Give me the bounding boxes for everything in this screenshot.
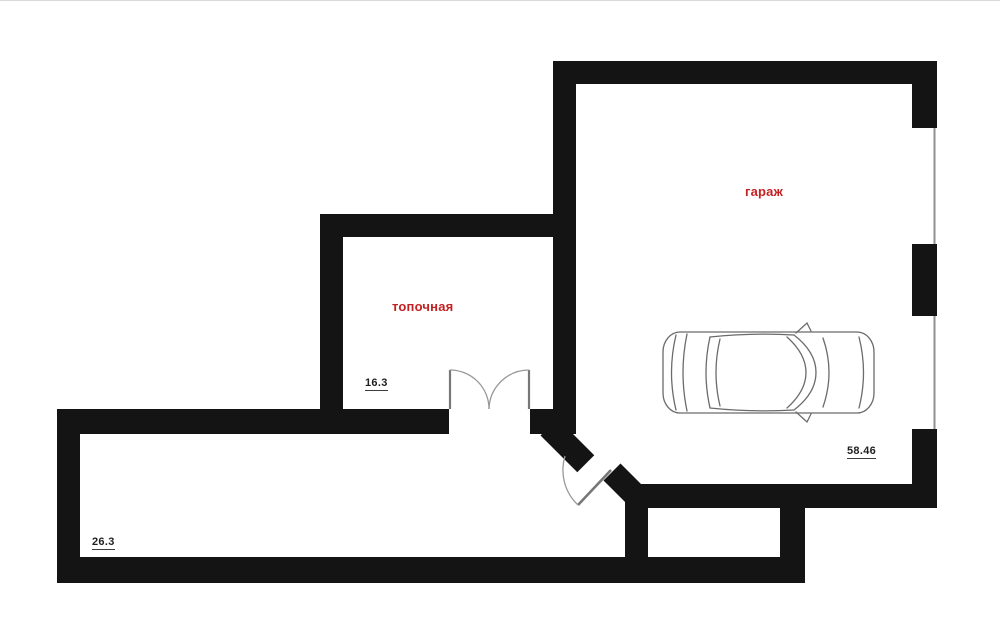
area-label-corridor: 26.3: [92, 536, 115, 550]
wall-garage-right-upper: [912, 61, 937, 128]
car: [663, 323, 874, 422]
area-label-boiler: 16.3: [365, 377, 388, 391]
wall-boiler-left: [320, 214, 343, 434]
car-rear-window-inner: [716, 339, 720, 406]
room-label-boiler: топочная: [392, 299, 453, 314]
wall-garage-right-middle: [912, 244, 937, 316]
car-windshield-inner: [787, 337, 806, 408]
floor-plan-canvas: [0, 1, 1000, 631]
car-rear-bumper-line: [672, 335, 677, 410]
car-windshield-outer: [794, 335, 816, 410]
wall-bottom: [57, 557, 805, 583]
door-leaf-diagonal: [578, 470, 611, 505]
wall-niche-right: [780, 508, 805, 568]
wall-garage-bottom: [636, 484, 937, 508]
doors: [450, 370, 611, 505]
walls: [57, 61, 937, 583]
car-front-bumper-line: [859, 337, 864, 408]
door-swing-arc-right: [489, 370, 529, 409]
wall-boiler-top: [320, 214, 576, 237]
room-label-garage: гараж: [745, 184, 783, 199]
wall-corridor-left: [57, 409, 80, 581]
car-trunk-line: [683, 334, 687, 411]
door-swing-arc-left: [450, 370, 489, 409]
wall-corridor-top-left-of-door: [57, 409, 449, 434]
car-body-outline: [663, 332, 874, 413]
car-rear-window-outer: [706, 337, 710, 408]
double-door-boiler: [450, 370, 529, 409]
area-label-garage: 58.46: [847, 445, 876, 459]
wall-garage-left: [553, 61, 576, 423]
car-roof-edge-top: [710, 334, 794, 337]
floor-plan: гараж топочная 58.46 16.3 26.3: [0, 0, 1000, 631]
wall-garage-top: [553, 61, 937, 84]
car-hood-line: [823, 338, 829, 407]
car-roof-edge-bottom: [710, 408, 794, 411]
